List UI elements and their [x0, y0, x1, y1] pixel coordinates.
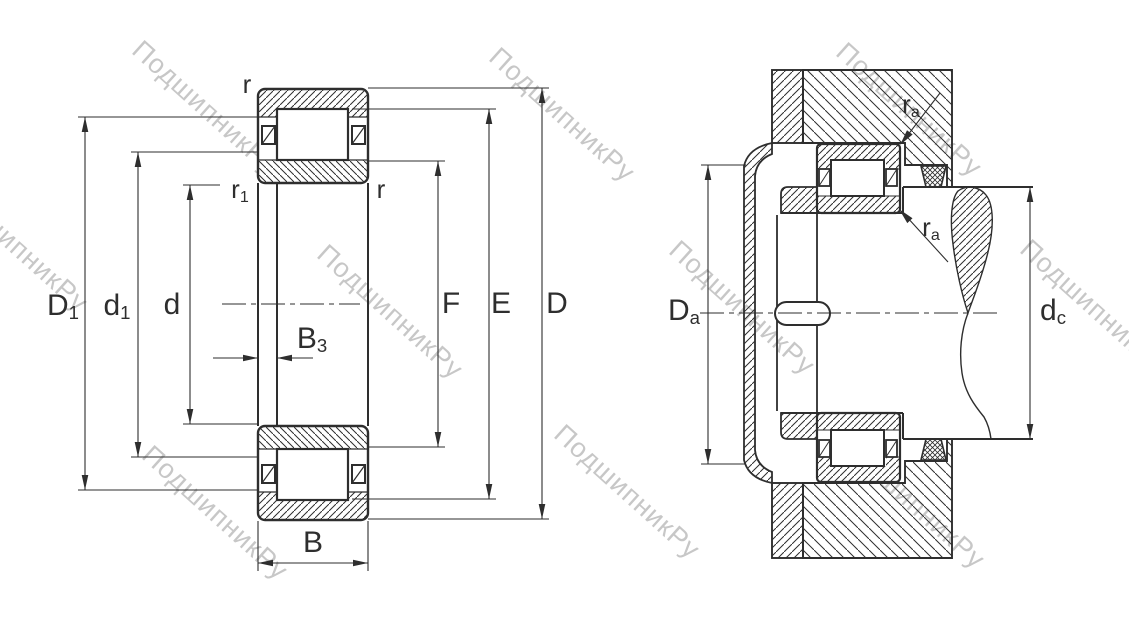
label-r-right: r: [377, 176, 386, 202]
label-d1: d1: [103, 291, 130, 321]
label-r-top: r: [243, 71, 252, 97]
label-D: D: [546, 289, 568, 319]
label-D1: D1: [47, 291, 79, 321]
left-view-bearing-section: [222, 89, 368, 520]
label-Da: Da: [668, 296, 700, 326]
label-d: d: [164, 290, 181, 320]
label-B: B: [303, 528, 323, 558]
label-ra-top: ra: [902, 91, 920, 117]
label-E: E: [491, 289, 511, 319]
label-ra-bottom: ra: [922, 214, 940, 240]
label-r1: r1: [231, 176, 249, 202]
bearing-drawing-page: ПодшипникРу ПодшипникРу ПодшипникРу Подш…: [0, 0, 1129, 632]
label-dc: dc: [1040, 296, 1066, 326]
label-F: F: [442, 289, 460, 319]
right-view-mounting-section: [700, 70, 1033, 558]
label-B3: B3: [297, 324, 327, 354]
